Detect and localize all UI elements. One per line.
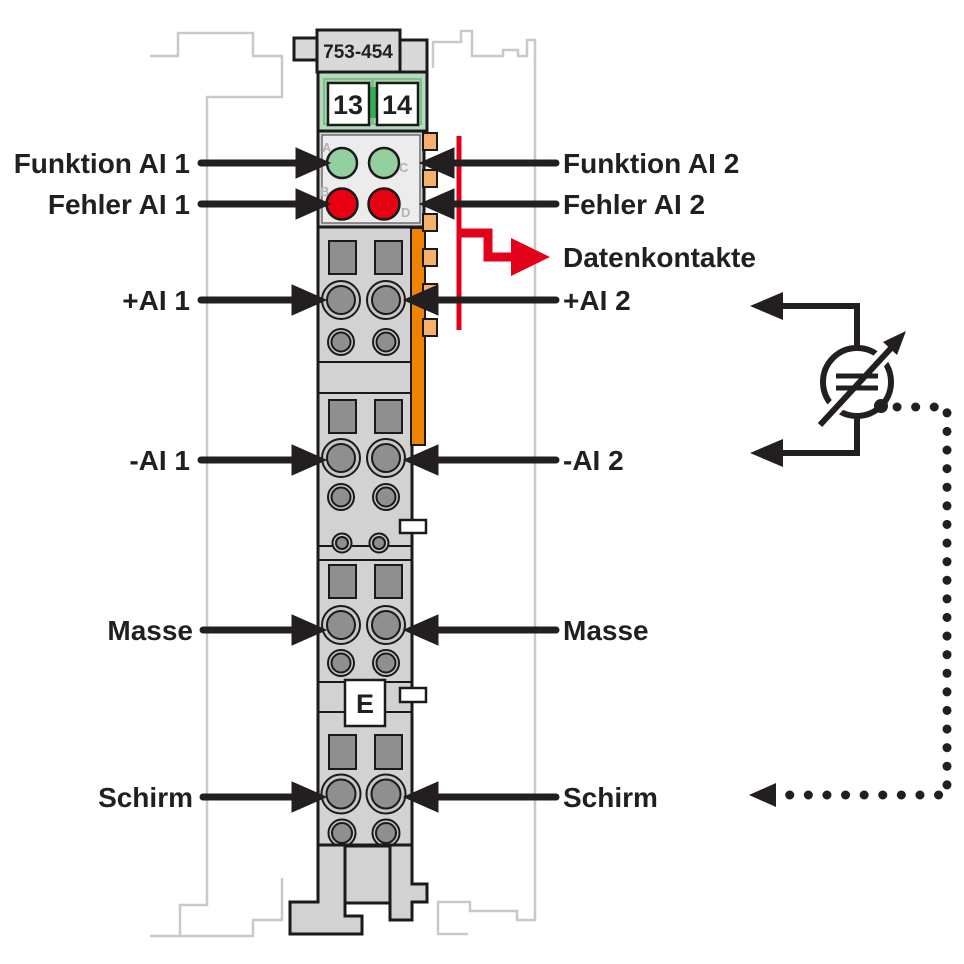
led-funktion-ai2-green-icon [369,148,399,178]
right-labels: Funktion AI 2 Fehler AI 2 Datenkontakte … [563,148,756,813]
led-letter-b: B [320,184,329,199]
module-top-left-hook [294,38,318,60]
diagram-svg: 753-454 13 14 A B C D [0,0,964,964]
label-schirm-right: Schirm [563,782,658,813]
sensor-arrow-minus-icon [750,439,783,467]
label-funktion-ai2: Funktion AI 2 [563,148,739,179]
wire-port-minus-ai2 [372,444,400,472]
label-plus-ai2: +AI 2 [563,285,631,316]
push-button [329,735,356,769]
wire-port-masse-2 [372,611,400,639]
shield-arrowhead-icon [749,783,776,807]
wire-port-schirm-2 [372,780,401,809]
sensor-wire-plus [776,306,857,348]
sensor-arrow-plus-icon [750,292,783,320]
side-notch [400,520,426,533]
label-masse-left: Masse [107,615,193,646]
data-contact-arrowhead-icon [511,238,550,276]
side-notch [400,688,426,702]
wiring-diagram: 753-454 13 14 A B C D [0,0,964,964]
wire-port-plus-ai2 [372,286,400,314]
e-marker-label: E [356,689,374,719]
sensor-symbol [749,292,947,807]
terminal-14-label: 14 [382,90,412,120]
led-letter-c: C [399,160,409,175]
wire-port-minus-ai1 [327,444,355,472]
push-button [375,241,402,274]
push-button [329,241,356,274]
left-neighbour-foot-outline [180,878,282,936]
right-pointer-arrows [404,148,556,812]
label-fehler-ai1: Fehler AI 1 [48,189,190,220]
label-schirm-left: Schirm [98,782,193,813]
terminal-13-label: 13 [333,90,363,120]
label-minus-ai2: -AI 2 [563,445,624,476]
left-pointer-arrows [201,148,330,812]
data-contact-arrow-shaft [459,233,514,257]
led-letter-a: A [322,140,332,155]
base-center-block [345,846,390,903]
push-button [329,565,356,598]
label-masse-right: Masse [563,615,649,646]
wire-port-masse-1 [327,611,355,639]
led-fehler-ai2-red-icon [369,189,400,220]
wire-port-plus-ai1 [327,286,355,314]
label-plus-ai1: +AI 1 [122,285,190,316]
shield-dotted-wire [782,407,947,795]
module-top-right-hook [400,40,427,72]
push-button [375,735,402,769]
push-button [375,400,402,433]
module-part-number: 753-454 [323,42,393,63]
led-funktion-ai1-green-icon [327,148,357,178]
shield-tap-dot [874,399,888,413]
wire-port-schirm-1 [327,780,356,809]
push-button [375,565,402,598]
label-datenkontakte: Datenkontakte [563,242,756,273]
left-labels: Funktion AI 1 Fehler AI 1 +AI 1 -AI 1 Ma… [14,148,193,813]
push-button [329,400,356,433]
label-funktion-ai1: Funktion AI 1 [14,148,190,179]
label-minus-ai1: -AI 1 [129,445,190,476]
led-letter-d: D [401,205,410,220]
label-fehler-ai2: Fehler AI 2 [563,189,705,220]
